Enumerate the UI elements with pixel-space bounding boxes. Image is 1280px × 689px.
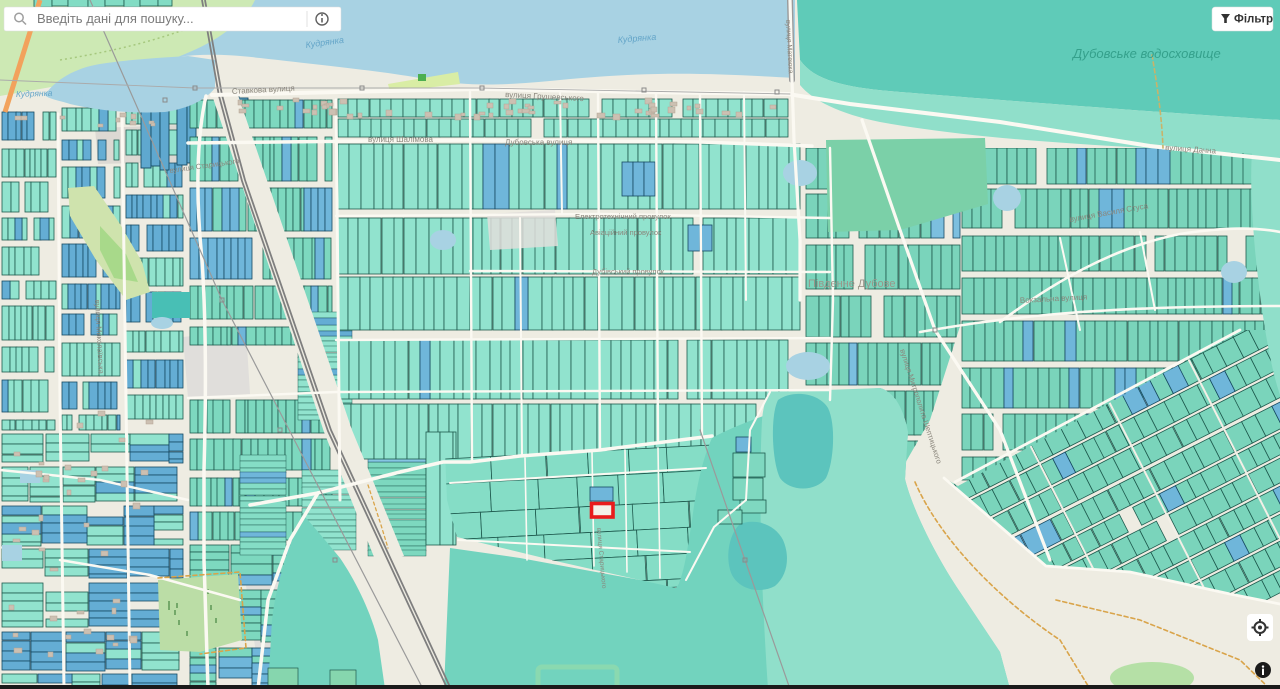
svg-text:вулиця Шалімова: вулиця Шалімова xyxy=(368,135,434,144)
svg-text:Дубовське водосховище: Дубовське водосховище xyxy=(1071,46,1221,61)
svg-text:Введіть дані для пошуку...: Введіть дані для пошуку... xyxy=(37,11,194,26)
svg-text:Фільтр: Фільтр xyxy=(1234,14,1273,26)
svg-text:Електротехнічний провулок: Електротехнічний провулок xyxy=(575,212,671,221)
svg-text:Авіаційний провулок: Авіаційний провулок xyxy=(590,228,662,237)
svg-text:Кудрянка: Кудрянка xyxy=(16,88,53,99)
svg-text:Південне Дубове: Південне Дубове xyxy=(808,278,896,290)
svg-text:Дубівський провулок: Дубівський провулок xyxy=(592,267,665,276)
svg-text:Дубовська вулиця: Дубовська вулиця xyxy=(505,138,572,147)
